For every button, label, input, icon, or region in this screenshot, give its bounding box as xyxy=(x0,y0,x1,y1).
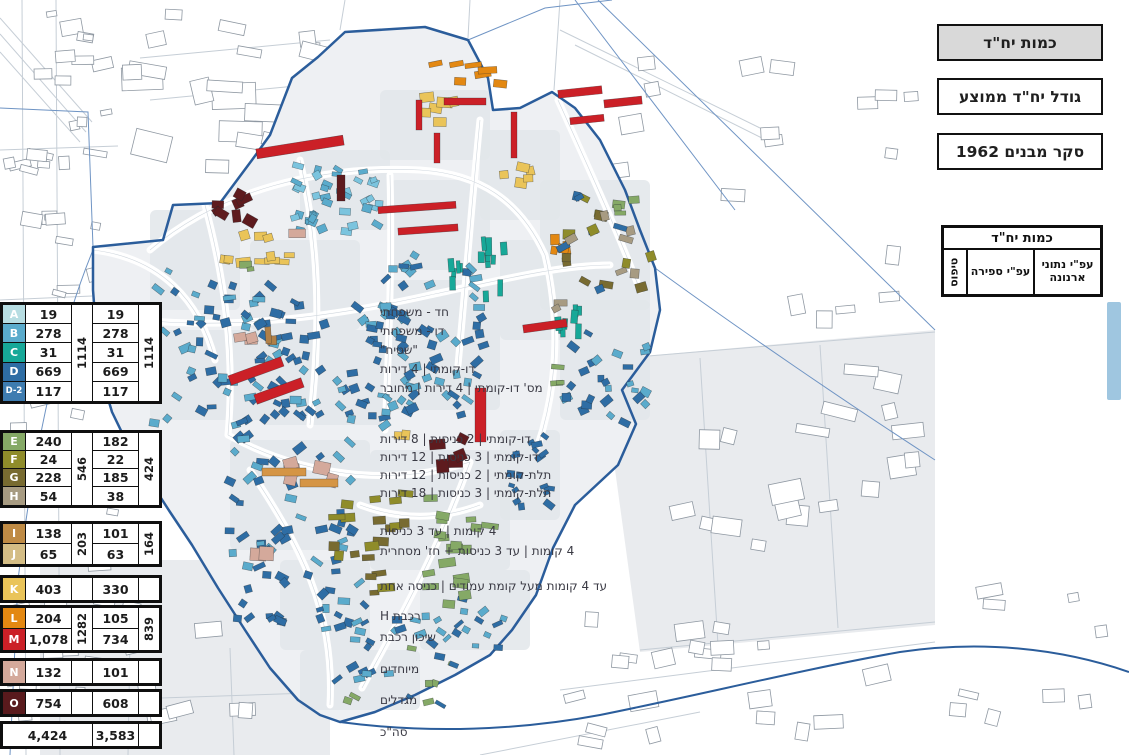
row-labels: חד - משפחתידו - משפחתי"שטיח"דו-קומתי | 4… xyxy=(380,302,935,398)
count-value: 19 xyxy=(25,305,71,324)
arnona-value: 38 xyxy=(92,487,138,505)
row-label: 4 קומות | עד 3 כניסות xyxy=(380,521,935,541)
row-label: דו-קומתי | 4 דירות xyxy=(380,360,935,379)
table-title: כמות יח"ד xyxy=(944,228,1100,250)
row-label: דו-קומתי | 3 כניסות | 12 דירות xyxy=(380,448,935,466)
row-labels: מיוחדים xyxy=(380,658,935,680)
count-subtotal xyxy=(71,578,92,600)
arnona-value: 101 xyxy=(92,524,138,544)
type-swatch-G: G xyxy=(3,469,25,487)
table-group: 4,4243,583 xyxy=(0,721,162,749)
arnona-value: 669 xyxy=(92,363,138,382)
total-empty xyxy=(138,724,159,746)
row-label: דו - משפחתי xyxy=(380,321,935,340)
count-subtotal: 1114 xyxy=(71,305,92,401)
count-value: 24 xyxy=(25,451,71,469)
arnona-value: 19 xyxy=(92,305,138,324)
row-labels: 4 קומות | עד 3 כניסות4 קומות | עד 3 כניס… xyxy=(380,521,935,561)
layer-button-unit-count[interactable]: כמות יח"ד xyxy=(937,24,1103,61)
type-swatch-M: M xyxy=(3,629,25,650)
row-labels: סה"כ xyxy=(380,721,935,743)
type-swatch-J: J xyxy=(3,544,25,564)
table-group: L204105M1,0787341282839 xyxy=(0,605,162,653)
arnona-value: 105 xyxy=(92,608,138,629)
arnona-value: 31 xyxy=(92,343,138,362)
count-value: 278 xyxy=(25,324,71,343)
count-subtotal: 1282 xyxy=(71,608,92,650)
count-subtotal: 203 xyxy=(71,524,92,564)
type-swatch-H: H xyxy=(3,487,25,505)
column-header-arnona: עפ"י נתוני ארנונה xyxy=(1033,250,1100,294)
type-swatch-I: I xyxy=(3,524,25,544)
arnona-subtotal: 1114 xyxy=(138,305,159,401)
row-label: 4 קומות | עד 3 כניסות + חז' מסחרית xyxy=(380,541,935,561)
count-value: 1,078 xyxy=(25,629,71,650)
type-swatch-D: D xyxy=(3,363,25,382)
type-swatch-K: K xyxy=(3,578,25,600)
count-value: 228 xyxy=(25,469,71,487)
type-swatch-A: A xyxy=(3,305,25,324)
row-label: דו-קומתי | 2 כניסות | 8 דירות xyxy=(380,430,935,448)
arnona-subtotal: 839 xyxy=(138,608,159,650)
count-value: 669 xyxy=(25,363,71,382)
arnona-value: 22 xyxy=(92,451,138,469)
column-header-count: עפ"י ספירה xyxy=(966,250,1033,294)
arnona-value: 608 xyxy=(92,692,138,714)
row-label: מיוחדים xyxy=(380,658,935,680)
row-label: מס' דו-קומתי | 4 דירות | מחובר xyxy=(380,379,935,398)
type-swatch-D-2: D-2 xyxy=(3,382,25,401)
row-label: עד 4 קומות מעל קומת עמודים | כניסה אחת xyxy=(380,575,935,597)
table-group: I138101J6563203164 xyxy=(0,521,162,567)
count-value: 204 xyxy=(25,608,71,629)
count-subtotal xyxy=(71,661,92,683)
row-label: "שטיח" xyxy=(380,340,935,359)
table-group: O754608 xyxy=(0,689,162,717)
row-labels: עד 4 קומות מעל קומת עמודים | כניסה אחת xyxy=(380,575,935,597)
column-header-type: טיפוס xyxy=(944,250,966,294)
row-labels: רכבת Hשיכון רכבת xyxy=(380,605,935,647)
type-swatch-C: C xyxy=(3,343,25,362)
table-header: כמות יח"ד טיפוס עפ"י ספירה עפ"י נתוני אר… xyxy=(941,225,1103,297)
total-arnona: 3,583 xyxy=(92,724,138,746)
type-swatch-L: L xyxy=(3,608,25,629)
row-label: סה"כ xyxy=(380,721,935,743)
type-swatch-B: B xyxy=(3,324,25,343)
row-label: תלת-קומתי | 3 כניסות | 18 דירות xyxy=(380,484,935,502)
layer-button-avg-unit-size[interactable]: גודל יח"ד ממוצע xyxy=(937,78,1103,115)
row-labels: דו-קומתי | 2 כניסות | 8 דירותדו-קומתי | … xyxy=(380,430,935,502)
arnona-value: 278 xyxy=(92,324,138,343)
type-swatch-O: O xyxy=(3,692,25,714)
count-value: 132 xyxy=(25,661,71,683)
arnona-value: 101 xyxy=(92,661,138,683)
row-labels: מגדלים xyxy=(380,689,935,711)
count-value: 117 xyxy=(25,382,71,401)
count-subtotal: 546 xyxy=(71,433,92,505)
total-count: 4,424 xyxy=(3,724,92,746)
arnona-value: 182 xyxy=(92,433,138,451)
row-label: מגדלים xyxy=(380,689,935,711)
count-value: 54 xyxy=(25,487,71,505)
arnona-subtotal xyxy=(138,661,159,683)
table-group: A1919B278278C3131D669669D-21171171114111… xyxy=(0,302,162,404)
count-value: 31 xyxy=(25,343,71,362)
arnona-subtotal xyxy=(138,692,159,714)
count-subtotal xyxy=(71,692,92,714)
count-value: 138 xyxy=(25,524,71,544)
layer-button-survey-1962[interactable]: סקר מבנים 1962 xyxy=(937,133,1103,170)
count-value: 240 xyxy=(25,433,71,451)
arnona-value: 185 xyxy=(92,469,138,487)
count-value: 65 xyxy=(25,544,71,564)
arnona-value: 734 xyxy=(92,629,138,650)
arnona-value: 63 xyxy=(92,544,138,564)
table-group: N132101 xyxy=(0,658,162,686)
type-swatch-E: E xyxy=(3,433,25,451)
row-label: חד - משפחתי xyxy=(380,302,935,321)
table-group: K403330 xyxy=(0,575,162,603)
row-label: רכבת H xyxy=(380,605,935,626)
arnona-subtotal xyxy=(138,578,159,600)
type-swatch-F: F xyxy=(3,451,25,469)
arnona-subtotal: 164 xyxy=(138,524,159,564)
type-swatch-N: N xyxy=(3,661,25,683)
arnona-subtotal: 424 xyxy=(138,433,159,505)
count-value: 403 xyxy=(25,578,71,600)
row-label: תלת-קומתי | 2 כניסות | 12 דירות xyxy=(380,466,935,484)
arnona-value: 117 xyxy=(92,382,138,401)
table-group: E240182F2422G228185H5438546424 xyxy=(0,430,162,508)
count-value: 754 xyxy=(25,692,71,714)
row-label: שיכון רכבת xyxy=(380,626,935,647)
highlight-bar xyxy=(1107,302,1121,400)
arnona-value: 330 xyxy=(92,578,138,600)
